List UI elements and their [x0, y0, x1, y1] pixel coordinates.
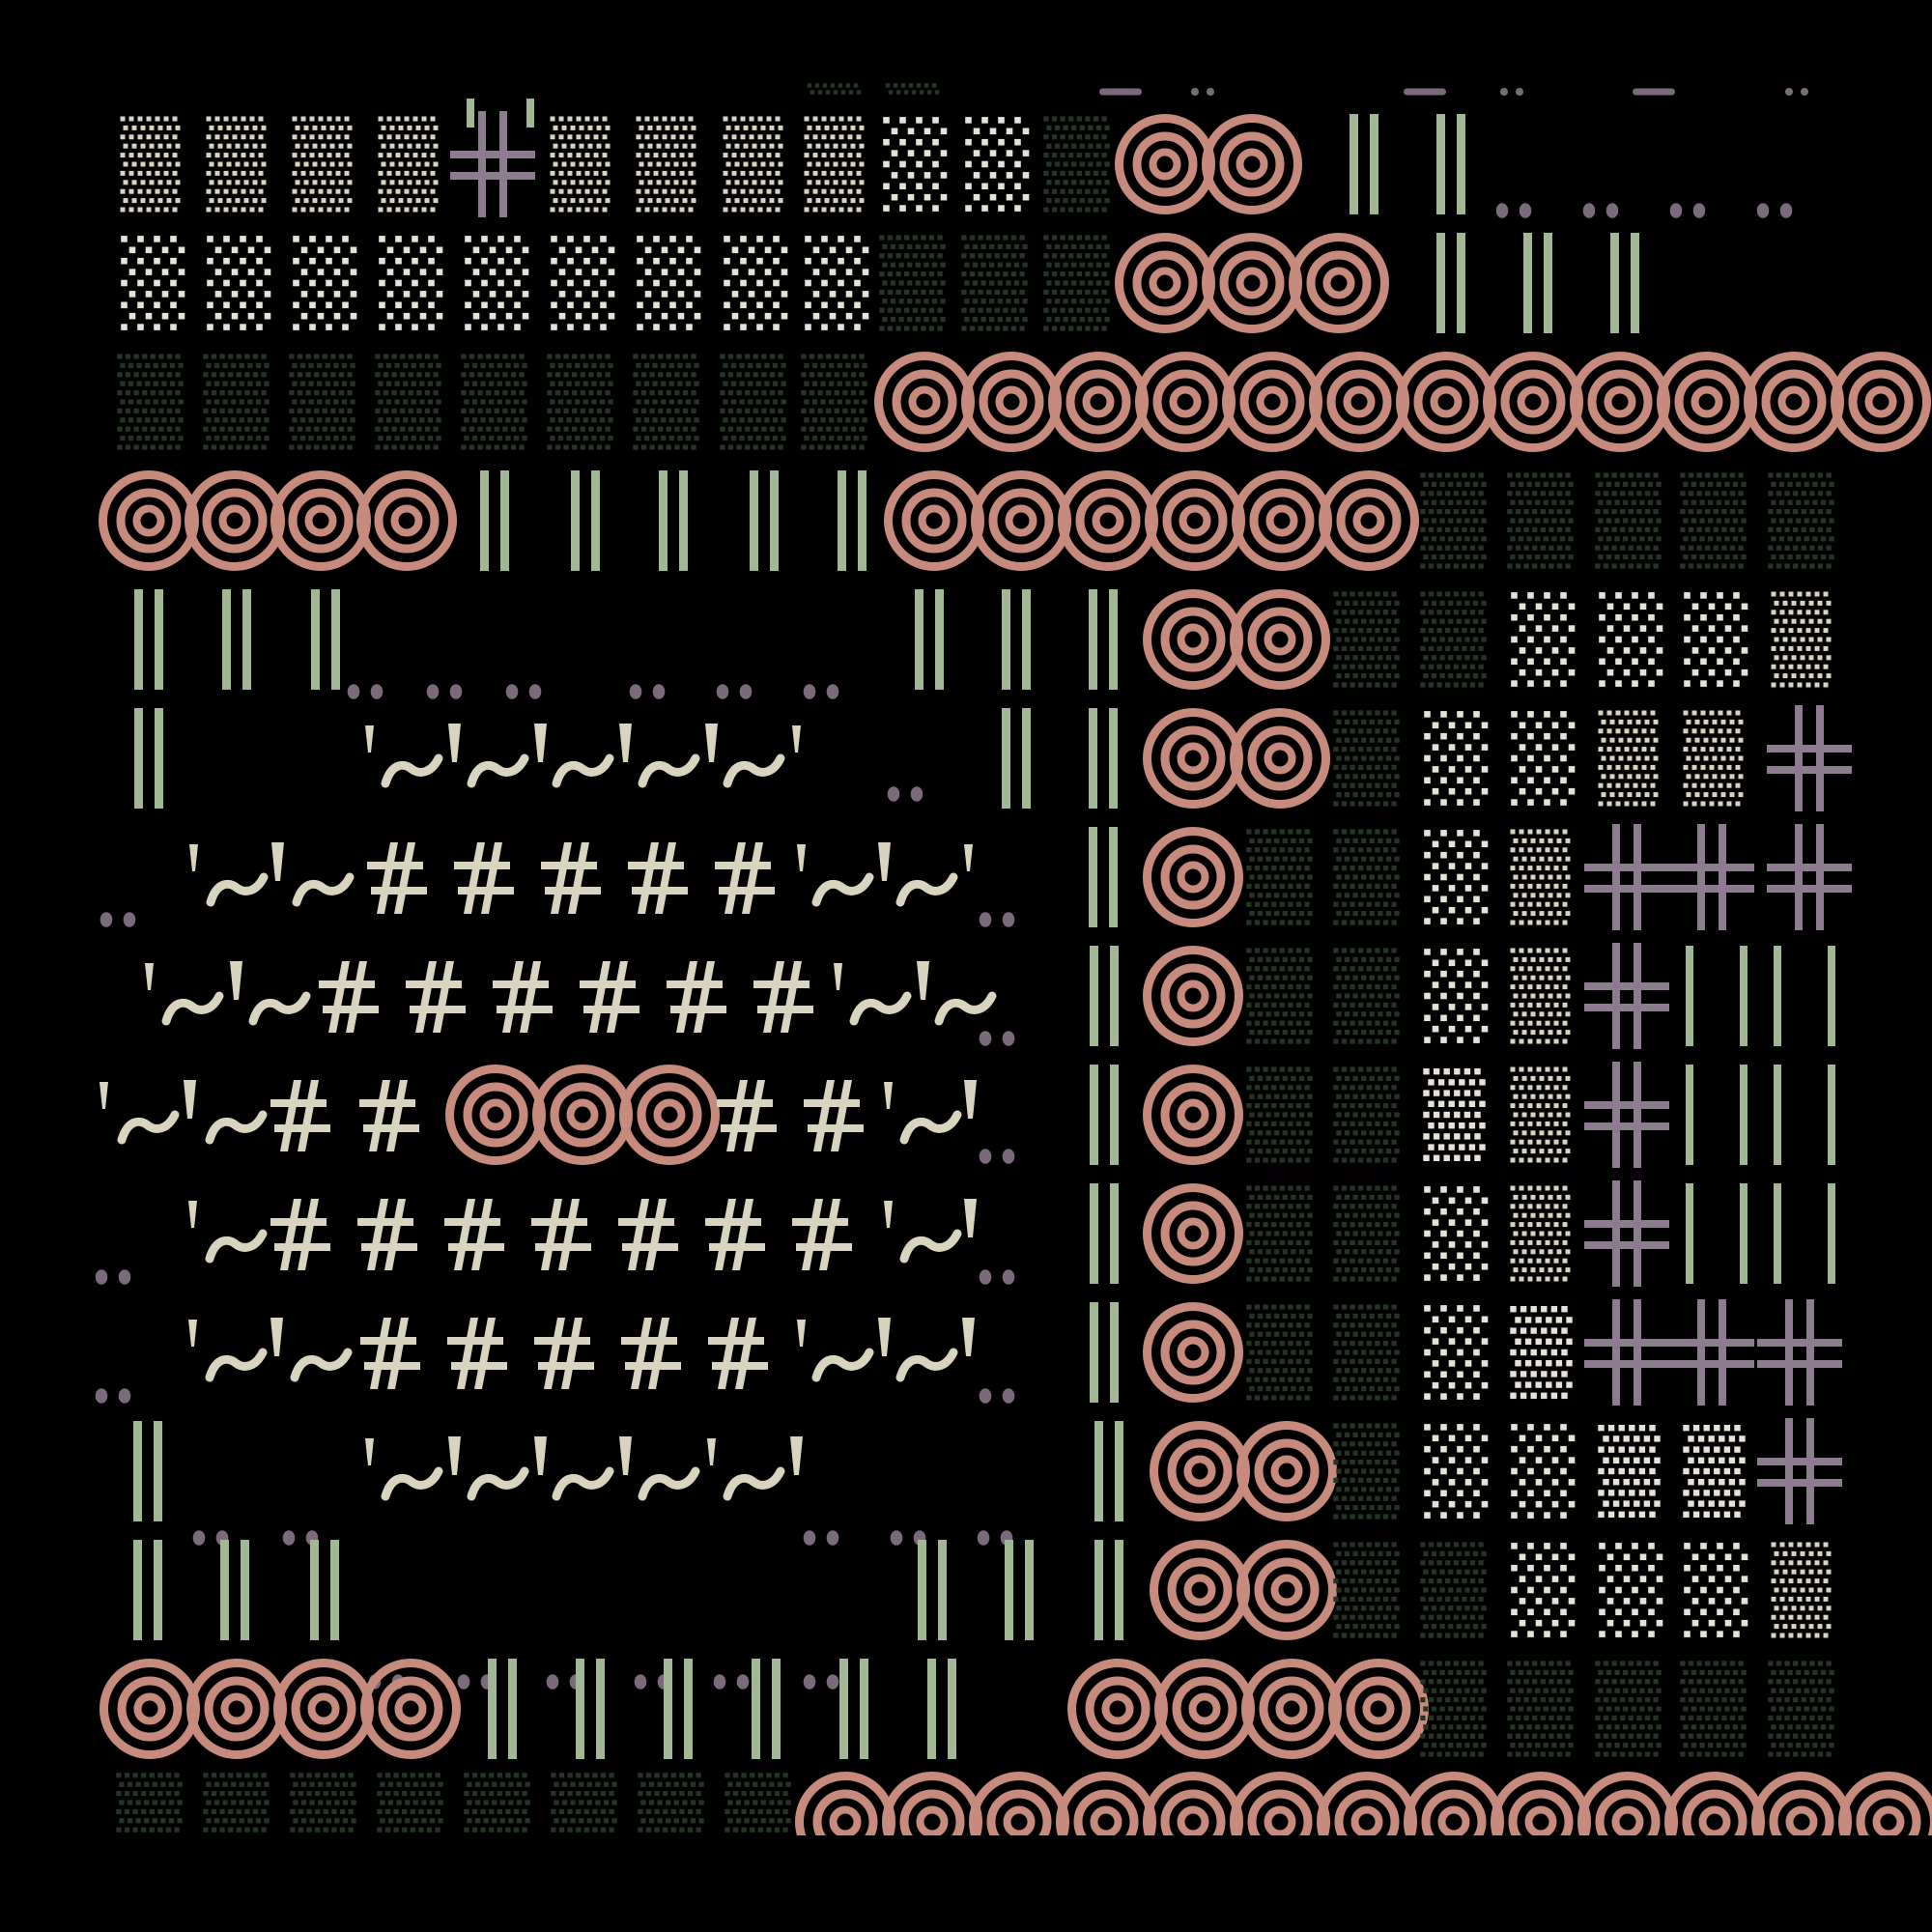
glyph-cream-hash: [367, 842, 427, 914]
glyph-cream-wave: [385, 758, 439, 783]
glyph-concentric-target-circles: [1293, 238, 1385, 329]
glyph-purple-dot-pair: [1583, 203, 1619, 218]
glyph-purple-dot-pair: [348, 684, 384, 699]
glyph-small-taper-tick: [707, 1438, 716, 1465]
glyph-double-vertical-green-bars: [1002, 589, 1031, 690]
glyph-dark-green-dot-block: [1333, 710, 1399, 806]
glyph-dark-green-dot-block: [801, 354, 867, 449]
glyph-concentric-target-circles: [1575, 356, 1666, 448]
glyph-large-taper-tick: [964, 1199, 977, 1237]
glyph-dark-green-dot-block: [203, 354, 269, 449]
glyph-cream-hash: [531, 1199, 591, 1270]
glyph-concentric-target-circles: [1235, 713, 1326, 805]
glyph-double-vertical-green-bars: [838, 470, 867, 571]
glyph-concentric-target-circles: [1241, 1426, 1333, 1518]
glyph-large-taper-tick: [964, 1080, 977, 1119]
glyph-purple-dot-pair: [427, 684, 463, 699]
glyph-cream-wave: [727, 1471, 781, 1496]
glyph-mauve-double-cross: [1669, 824, 1754, 930]
glyph-mauve-double-cross: [1584, 1180, 1669, 1287]
glyph-cream-hash: [792, 1199, 852, 1270]
glyph-sparse-light-dot-block: [724, 236, 787, 330]
glyph-small-taper-tick: [188, 1320, 197, 1347]
glyph-cream-wave: [471, 1471, 525, 1496]
glyph-bottom-clipped-target-circles: [1495, 1776, 1587, 1868]
glyph-cream-wave: [556, 758, 610, 783]
glyph-purple-dot-pair: [96, 1388, 131, 1404]
glyph-cream-wave: [556, 1471, 610, 1496]
glyph-concentric-target-circles: [1488, 356, 1579, 448]
glyph-sparse-light-dot-block: [805, 236, 868, 330]
glyph-double-vertical-green-bars: [222, 589, 251, 690]
glyph-cream-wave: [904, 1234, 957, 1259]
glyph-concentric-target-circles: [1159, 1663, 1251, 1755]
glyph-dark-green-dot-block: [1680, 1661, 1746, 1756]
glyph-sparse-light-dot-block: [965, 117, 1029, 212]
glyph-small-grey-dot-pair-fragment: [1191, 88, 1214, 96]
glyph-purple-dot-pair: [804, 684, 839, 699]
glyph-concentric-target-circles: [1314, 356, 1406, 448]
glyph-dark-green-dot-block-short: [551, 1773, 616, 1833]
glyph-concentric-target-circles: [1154, 1426, 1246, 1518]
art-canvas: [0, 0, 1932, 1932]
glyph-double-vertical-green-bars: [1094, 1421, 1123, 1521]
glyph-cream-hash: [753, 961, 813, 1033]
glyph-dark-green-dot-block: [1507, 472, 1573, 568]
glyph-small-taper-tick: [99, 1082, 108, 1109]
glyph-purple-dot-pair: [804, 1530, 839, 1546]
glyph-concentric-target-circles: [1148, 832, 1239, 923]
glyph-cream-wave: [904, 1115, 957, 1140]
glyph-bottom-clipped-target-circles: [1061, 1776, 1152, 1868]
glyph-sparse-light-dot-block: [379, 236, 442, 330]
glyph-concentric-target-circles: [1227, 356, 1319, 448]
glyph-concentric-target-circles: [450, 1069, 542, 1161]
glyph-mauve-double-cross: [1584, 1299, 1669, 1406]
glyph-cream-wave: [122, 1115, 175, 1140]
glyph-double-vertical-green-bars: [918, 1540, 947, 1640]
glyph-dense-cream-dot-block: [551, 117, 611, 213]
glyph-double-vertical-green-bars: [664, 1659, 693, 1759]
glyph-concentric-target-circles: [889, 475, 980, 567]
glyph-dark-green-dot-block: [1246, 948, 1312, 1043]
glyph-concentric-target-circles: [189, 475, 281, 567]
glyph-dark-green-dot-block-short: [290, 1773, 355, 1833]
glyph-small-taper-tick: [365, 725, 374, 753]
glyph-dark-green-dot-block-short: [116, 1773, 182, 1833]
glyph-dense-cream-dot-block: [293, 117, 353, 213]
glyph-bottom-clipped-target-circles: [1756, 1776, 1848, 1868]
glyph-medium-cream-dot-block: [1683, 1425, 1745, 1518]
glyph-cream-hash: [705, 1199, 765, 1270]
glyph-cream-wave: [210, 1115, 263, 1140]
glyph-double-vertical-green-bars: [134, 708, 163, 809]
glyph-sparse-light-dot-block: [1511, 1543, 1575, 1637]
glyph-sparse-light-dot-block: [1684, 1543, 1747, 1637]
glyph-double-vertical-green-bars: [576, 1659, 605, 1759]
glyph-cream-wave: [900, 877, 953, 902]
glyph-small-taper-tick: [189, 844, 198, 871]
glyph-large-taper-tick: [534, 724, 547, 762]
glyph-double-vertical-green-bars: [480, 470, 509, 571]
glyph-concentric-target-circles: [191, 1663, 283, 1755]
glyph-sparse-light-dot-block: [1424, 830, 1488, 924]
glyph-sparse-light-dot-block: [1424, 1186, 1488, 1281]
glyph-cream-hash: [360, 1318, 420, 1389]
glyph-dark-green-dot-block: [720, 354, 785, 449]
glyph-large-taper-tick: [878, 1318, 891, 1356]
glyph-dark-green-dot-block: [1595, 472, 1661, 568]
glyph-single-short-green-bar: [526, 99, 534, 128]
glyph-concentric-target-circles: [1148, 1069, 1239, 1161]
glyph-dark-green-dot-block: [1507, 1661, 1573, 1756]
glyph-large-taper-tick: [184, 1080, 196, 1119]
glyph-double-vertical-green-bars: [927, 1659, 956, 1759]
glyph-dense-cream-dot-block: [379, 117, 439, 213]
glyph-large-taper-tick: [448, 1436, 461, 1475]
glyph-sparse-light-dot-block: [1424, 711, 1488, 806]
glyph-dark-green-dot-block-short: [724, 1773, 790, 1833]
glyph-cream-wave: [385, 1471, 439, 1496]
glyph-bottom-clipped-target-circles: [1321, 1776, 1413, 1868]
glyph-concentric-target-circles: [1120, 238, 1211, 329]
glyph-bottom-clipped-target-circles: [974, 1776, 1065, 1868]
glyph-cream-hash: [357, 1199, 417, 1270]
glyph-double-vertical-green-bars: [1610, 233, 1639, 333]
glyph-small-taper-tick: [884, 1082, 893, 1109]
glyph-dense-cream-dot-block: [637, 117, 696, 213]
glyph-cream-wave: [854, 996, 907, 1021]
glyph-large-taper-tick: [878, 842, 891, 881]
glyph-bottom-clipped-target-circles: [800, 1776, 892, 1868]
glyph-bottom-clipped-target-circles: [1148, 1776, 1239, 1868]
glyph-dark-green-dot-block-short: [203, 1773, 269, 1833]
glyph-large-taper-tick: [270, 1318, 283, 1356]
glyph-wide-double-vertical-green-bars: [1774, 1183, 1835, 1284]
glyph-concentric-target-circles: [1148, 713, 1239, 805]
glyph-dense-cream-dot-block: [207, 117, 267, 213]
glyph-sparse-light-dot-block: [1511, 711, 1575, 806]
glyph-dark-green-dot-block: [117, 354, 183, 449]
glyph-dark-green-dot-block: [1768, 472, 1833, 568]
glyph-dark-green-dot-block: [1333, 1185, 1399, 1281]
glyph-sparse-light-dot-block: [293, 236, 356, 330]
glyph-small-taper-tick: [145, 963, 154, 990]
glyph-purple-dot-pair: [96, 1269, 131, 1285]
glyph-double-vertical-green-bars: [752, 1659, 781, 1759]
glyph-dense-cream-dot-block: [1511, 949, 1571, 1044]
glyph-double-vertical-green-bars: [571, 470, 600, 571]
glyph-dense-cream-dot-block: [724, 117, 783, 213]
glyph-wide-double-vertical-green-bars: [1686, 1065, 1747, 1165]
glyph-concentric-target-circles: [1072, 1663, 1164, 1755]
glyph-medium-cream-dot-block: [1510, 1306, 1572, 1399]
glyph-purple-dot-pair: [980, 1031, 1015, 1046]
glyph-dark-green-dot-block: [1246, 1304, 1312, 1400]
glyph-double-vertical-green-bars: [659, 470, 688, 571]
glyph-concentric-target-circles: [1140, 356, 1232, 448]
glyph-dark-green-dot-block: [1333, 1423, 1399, 1519]
glyph-bottom-clipped-target-circles: [1843, 1776, 1932, 1868]
glyph-sparse-light-dot-block: [207, 236, 270, 330]
glyph-concentric-target-circles: [1120, 119, 1211, 211]
glyph-cream-hash: [493, 961, 553, 1033]
glyph-dark-green-dot-block: [1333, 948, 1399, 1043]
glyph-bottom-clipped-target-circles: [1235, 1776, 1326, 1868]
glyph-dense-cream-dot-block: [1511, 830, 1571, 925]
glyph-concentric-target-circles: [1246, 1663, 1338, 1755]
glyph-sparse-light-dot-block: [1424, 949, 1488, 1043]
glyph-double-vertical-green-bars: [133, 1540, 162, 1640]
glyph-double-vertical-green-bars: [1090, 1183, 1119, 1284]
glyph-large-taper-tick: [917, 961, 929, 1000]
glyph-concentric-target-circles: [1323, 475, 1415, 567]
glyph-dark-green-dot-block: [1043, 235, 1109, 330]
glyph-dark-green-dot-block: [1333, 1066, 1399, 1162]
glyph-cream-hash: [708, 1318, 768, 1389]
glyph-bottom-clipped-target-circles: [1582, 1776, 1674, 1868]
glyph-bottom-clipped-target-circles: [1408, 1776, 1500, 1868]
glyph-medium-cream-dot-block: [1598, 1425, 1660, 1518]
glyph-concentric-target-circles: [1236, 475, 1328, 567]
glyph-concentric-target-circles: [537, 1069, 629, 1161]
generative-ascii-art: [0, 0, 1932, 1932]
glyph-small-taper-tick: [964, 844, 973, 871]
glyph-dense-cream-dot-block: [1684, 711, 1744, 807]
glyph-small-taper-tick: [797, 844, 806, 871]
glyph-mauve-double-cross: [1584, 943, 1669, 1049]
glyph-medium-cream-dot-block: [1423, 1068, 1485, 1161]
glyph-dense-cream-dot-block: [1599, 711, 1659, 807]
glyph-wide-double-vertical-green-bars: [1686, 946, 1747, 1046]
glyph-sparse-light-dot-block: [1511, 592, 1575, 687]
glyph-cream-hash: [406, 961, 466, 1033]
glyph-concentric-target-circles: [1748, 356, 1840, 448]
glyph-mauve-double-cross: [1584, 824, 1669, 930]
glyph-concentric-target-circles: [1662, 356, 1753, 448]
glyph-purple-dot-pair: [717, 684, 753, 699]
glyph-dark-green-dot-block: [1333, 829, 1399, 924]
glyph-sparse-light-dot-block: [1424, 1305, 1488, 1400]
glyph-double-vertical-green-bars: [1094, 1540, 1123, 1640]
glyph-dark-green-dot-block: [961, 235, 1027, 330]
glyph-small-grey-dot-pair-fragment: [1785, 88, 1808, 96]
glyph-double-vertical-green-bars: [1089, 589, 1118, 690]
glyph-small-taper-tick: [188, 1201, 197, 1228]
glyph-sparse-light-dot-block: [1684, 592, 1747, 687]
glyph-cream-hash: [534, 1318, 594, 1389]
glyph-concentric-target-circles: [1150, 475, 1241, 567]
glyph-dark-green-dot-block: [1768, 1661, 1833, 1756]
glyph-double-vertical-green-bars: [915, 589, 944, 690]
glyph-dark-green-dot-block: [1420, 1542, 1486, 1637]
glyph-concentric-target-circles: [976, 475, 1067, 567]
glyph-double-vertical-green-bars: [1350, 114, 1378, 214]
glyph-cream-hash: [270, 1199, 330, 1270]
glyph-cream-hash: [804, 1080, 864, 1151]
glyph-purple-dot-pair: [1757, 203, 1793, 218]
glyph-purple-dot-pair: [630, 684, 666, 699]
glyph-sparse-light-dot-block: [1599, 592, 1662, 687]
glyph-double-vertical-green-bars: [220, 1540, 249, 1640]
glyph-dense-cream-dot-block: [1772, 1543, 1832, 1638]
glyph-concentric-target-circles: [1241, 1545, 1333, 1636]
glyph-cream-wave: [253, 996, 306, 1021]
glyph-purple-dot-pair: [458, 1674, 494, 1690]
glyph-cream-wave: [939, 996, 992, 1021]
glyph-cream-wave: [210, 1234, 263, 1259]
glyph-dense-cream-dot-block: [805, 117, 865, 213]
glyph-bottom-clipped-target-circles: [1669, 1776, 1761, 1868]
glyph-concentric-target-circles: [361, 475, 453, 567]
glyph-dark-green-dot-block: [1333, 1542, 1399, 1637]
glyph-cream-wave: [727, 758, 781, 783]
glyph-dark-green-dot-block: [1420, 591, 1486, 687]
glyph-dark-green-dot-block: [1420, 472, 1486, 568]
glyph-double-vertical-green-bars: [488, 1659, 517, 1759]
glyph-cream-wave: [471, 758, 525, 783]
glyph-double-vertical-green-bars: [134, 589, 163, 690]
glyph-dark-green-dot-block: [1246, 1185, 1312, 1281]
glyph-cream-wave: [900, 1352, 953, 1378]
glyph-concentric-target-circles: [104, 1663, 196, 1755]
glyph-small-taper-tick: [797, 1320, 806, 1347]
glyph-large-taper-tick: [619, 1436, 632, 1475]
glyph-large-taper-tick: [534, 1436, 547, 1475]
glyph-wide-double-vertical-green-bars: [1774, 1065, 1835, 1165]
glyph-concentric-target-circles: [1053, 356, 1145, 448]
glyph-mauve-double-cross: [450, 111, 535, 217]
glyph-purple-dot-pair: [804, 1674, 839, 1690]
glyph-purple-dot-pair: [506, 684, 542, 699]
glyph-mauve-double-cross: [1584, 1062, 1669, 1168]
glyph-cream-hash: [319, 961, 379, 1033]
glyph-concentric-target-circles: [103, 475, 195, 567]
glyph-concentric-target-circles: [1835, 356, 1927, 448]
glyph-cream-hash: [717, 1080, 777, 1151]
glyph-large-taper-tick: [705, 724, 718, 762]
glyph-cream-hash: [270, 1080, 330, 1151]
glyph-double-vertical-green-bars: [1090, 1065, 1119, 1165]
glyph-double-vertical-green-bars: [1523, 233, 1552, 333]
glyph-cream-hash: [447, 1318, 507, 1389]
glyph-purple-dot-pair: [1496, 203, 1532, 218]
glyph-dark-green-dot-block-short: [464, 1773, 529, 1833]
glyph-sparse-light-dot-block: [1599, 1543, 1662, 1637]
glyph-wide-double-vertical-green-bars: [1774, 946, 1835, 1046]
glyph-purple-dot-pair: [980, 1149, 1015, 1164]
glyph-cream-wave: [210, 1352, 263, 1378]
glyph-cream-hash: [580, 961, 639, 1033]
glyph-purple-dot-pair: [980, 912, 1015, 927]
glyph-mauve-double-cross: [1767, 824, 1852, 930]
glyph-dark-green-dot-block: [1420, 1661, 1486, 1756]
glyph-dense-cream-dot-block: [1772, 592, 1832, 688]
glyph-cream-wave: [297, 877, 350, 902]
glyph-cream-hash: [541, 842, 601, 914]
glyph-double-vertical-green-bars: [1090, 946, 1119, 1046]
glyph-small-taper-tick: [792, 725, 801, 753]
glyph-double-vertical-green-bars: [839, 1659, 868, 1759]
glyph-double-vertical-green-bars: [1089, 708, 1118, 809]
glyph-concentric-target-circles: [624, 1069, 716, 1161]
glyph-cream-hash: [454, 842, 514, 914]
glyph-sparse-light-dot-block: [121, 236, 185, 330]
glyph-grey-dash-fragment: [1099, 89, 1142, 96]
glyph-sparse-light-dot-block: [1424, 1424, 1488, 1519]
glyph-double-vertical-green-bars: [310, 1540, 339, 1640]
glyph-sparse-light-dot-block: [465, 236, 528, 330]
glyph-dark-green-dot-block: [1043, 116, 1109, 212]
glyph-small-grey-dot-pair-fragment: [1500, 88, 1523, 96]
glyph-cream-wave: [642, 1471, 696, 1496]
glyph-mauve-double-cross: [1757, 1299, 1842, 1406]
glyph-dark-dot-strip-fragment: [886, 83, 940, 95]
glyph-cream-wave: [295, 1352, 348, 1378]
glyph-cream-hash: [628, 842, 688, 914]
glyph-concentric-target-circles: [1207, 238, 1298, 329]
glyph-dark-green-dot-block: [1333, 591, 1399, 687]
glyph-cream-wave: [166, 996, 219, 1021]
glyph-dark-green-dot-block: [461, 354, 526, 449]
glyph-cream-hash: [359, 1080, 419, 1151]
glyph-purple-dot-pair: [888, 786, 923, 802]
glyph-cream-hash: [715, 842, 775, 914]
glyph-dark-green-dot-block: [1246, 1066, 1312, 1162]
glyph-sparse-light-dot-block: [551, 236, 614, 330]
glyph-grey-dash-fragment: [1404, 89, 1446, 96]
glyph-concentric-target-circles: [879, 356, 971, 448]
glyph-dense-cream-dot-block: [1511, 1186, 1571, 1282]
glyph-cream-wave: [816, 1352, 869, 1378]
glyph-concentric-target-circles: [1401, 356, 1492, 448]
glyph-concentric-target-circles: [1148, 951, 1239, 1042]
glyph-concentric-target-circles: [1235, 594, 1326, 686]
glyph-cream-wave: [642, 758, 696, 783]
glyph-dark-dot-strip-fragment: [808, 83, 862, 95]
glyph-dark-green-dot-block: [1680, 472, 1746, 568]
glyph-mauve-double-cross: [1669, 1299, 1754, 1406]
glyph-dark-green-dot-block-short: [377, 1773, 442, 1833]
glyph-purple-dot-pair: [100, 912, 136, 927]
glyph-double-vertical-green-bars: [750, 470, 779, 571]
glyph-concentric-target-circles: [1333, 1663, 1425, 1755]
glyph-concentric-target-circles: [275, 475, 367, 567]
glyph-sparse-light-dot-block: [637, 236, 700, 330]
glyph-dark-green-dot-block: [1595, 1661, 1661, 1756]
glyph-dense-cream-dot-block: [1511, 1067, 1571, 1163]
glyph-small-taper-tick: [884, 1201, 893, 1228]
glyph-dark-green-dot-block: [375, 354, 440, 449]
glyph-large-taper-tick: [230, 961, 242, 1000]
glyph-double-vertical-green-bars: [1436, 114, 1465, 214]
glyph-concentric-target-circles: [966, 356, 1058, 448]
glyph-large-taper-tick: [790, 1436, 803, 1475]
glyph-dark-green-dot-block: [879, 235, 945, 330]
glyph-concentric-target-circles: [1063, 475, 1154, 567]
glyph-purple-dot-pair: [980, 1388, 1015, 1404]
glyph-cream-wave: [211, 877, 264, 902]
glyph-purple-dot-pair: [1670, 203, 1706, 218]
glyph-bottom-clipped-target-circles: [887, 1776, 979, 1868]
glyph-concentric-target-circles: [1148, 1307, 1239, 1399]
glyph-purple-dot-pair: [714, 1674, 750, 1690]
glyph-large-taper-tick: [271, 842, 284, 881]
glyph-small-taper-tick: [834, 963, 842, 990]
glyph-dark-green-dot-block-short: [638, 1773, 703, 1833]
glyph-dark-green-dot-block: [1246, 829, 1312, 924]
glyph-double-vertical-green-bars: [311, 589, 340, 690]
